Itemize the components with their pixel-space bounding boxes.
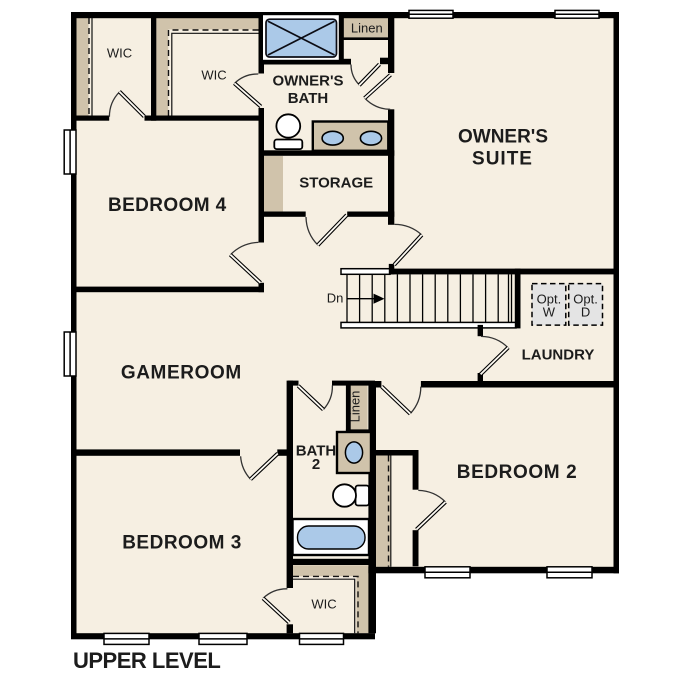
- svg-text:W: W: [543, 305, 556, 320]
- svg-text:D: D: [581, 305, 590, 320]
- svg-text:GAMEROOM: GAMEROOM: [121, 363, 242, 384]
- svg-text:BEDROOM 2: BEDROOM 2: [457, 462, 577, 483]
- svg-text:Linen: Linen: [348, 391, 363, 423]
- svg-text:WIC: WIC: [201, 67, 226, 82]
- svg-text:SUITE: SUITE: [472, 149, 533, 170]
- svg-text:BATH: BATH: [288, 90, 329, 107]
- svg-text:Linen: Linen: [351, 21, 383, 36]
- svg-text:OWNER'S: OWNER'S: [272, 72, 343, 89]
- svg-text:STORAGE: STORAGE: [299, 174, 373, 191]
- svg-text:Dn: Dn: [327, 291, 344, 306]
- svg-text:2: 2: [312, 456, 320, 473]
- svg-text:OWNER'S: OWNER'S: [458, 127, 548, 148]
- svg-text:BEDROOM 3: BEDROOM 3: [122, 533, 242, 554]
- svg-text:LAUNDRY: LAUNDRY: [522, 346, 595, 363]
- svg-text:UPPER LEVEL: UPPER LEVEL: [73, 648, 220, 673]
- svg-text:WIC: WIC: [311, 597, 336, 612]
- svg-text:WIC: WIC: [107, 46, 132, 61]
- svg-text:BEDROOM 4: BEDROOM 4: [108, 195, 227, 216]
